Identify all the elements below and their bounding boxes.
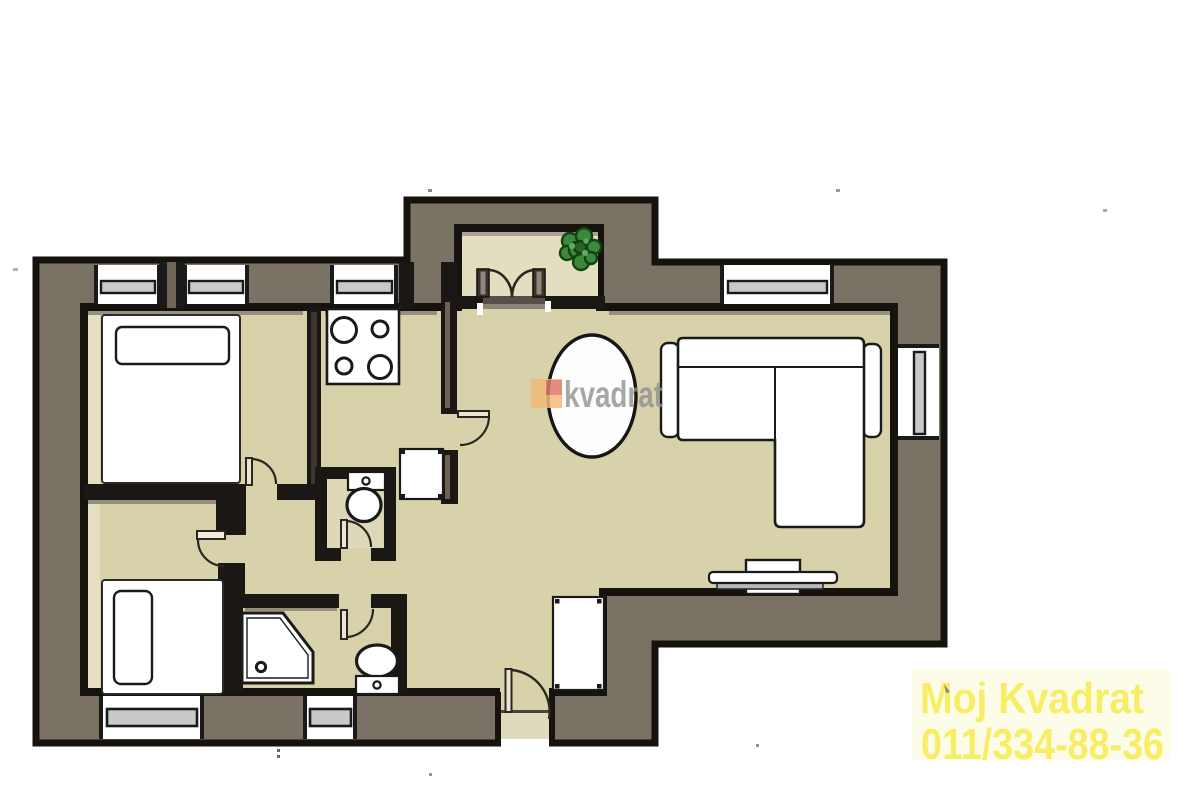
svg-text:kvadrat: kvadrat [564,374,663,415]
svg-text:011/334-88-36: 011/334-88-36 [921,720,1164,769]
svg-text:Moj Kvadrat: Moj Kvadrat [920,674,1144,723]
